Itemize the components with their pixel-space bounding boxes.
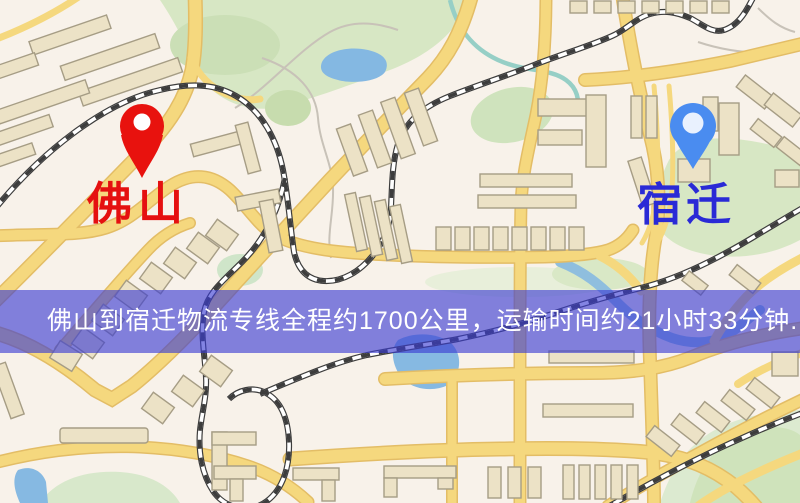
map-screenshot: 佛山 宿迁 佛山到宿迁物流专线全程约1700公里，运输时间约21小时33分钟. bbox=[0, 0, 800, 503]
banner-text: 佛山到宿迁物流专线全程约1700公里，运输时间约21小时33分钟. bbox=[0, 309, 798, 334]
origin-label: 佛山 bbox=[86, 178, 189, 229]
destination-label: 宿迁 bbox=[637, 179, 735, 230]
map-canvas: 佛山 宿迁 bbox=[0, 0, 800, 503]
info-banner: 佛山到宿迁物流专线全程约1700公里，运输时间约21小时33分钟. bbox=[0, 290, 800, 353]
